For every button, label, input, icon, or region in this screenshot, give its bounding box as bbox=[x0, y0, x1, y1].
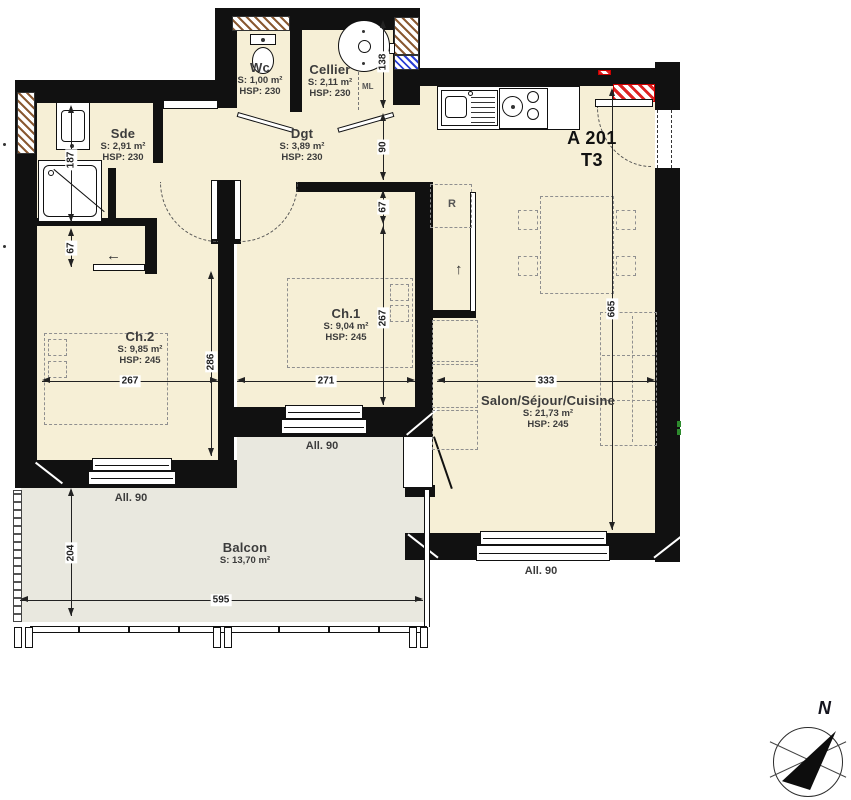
wall bbox=[655, 62, 680, 110]
room-label-ch1: Ch.1 S: 9,04 m² HSP: 245 bbox=[324, 306, 369, 343]
railing-post bbox=[420, 627, 428, 648]
entrance-door-leaf bbox=[595, 99, 653, 107]
dim-arrow bbox=[647, 377, 655, 383]
chair-outline bbox=[518, 256, 538, 276]
room-hsp: HSP: 245 bbox=[324, 332, 369, 343]
burner-dot bbox=[511, 105, 515, 109]
dim-label: 138 bbox=[377, 52, 389, 73]
unit-code: A 201 bbox=[567, 128, 617, 150]
fridge-label: R bbox=[448, 198, 456, 210]
room-label-wc: Wc S: 1,00 m² HSP: 230 bbox=[238, 60, 283, 97]
dim-label: 286 bbox=[205, 352, 217, 373]
railing-post bbox=[25, 627, 33, 648]
washer-label: ML bbox=[362, 82, 374, 91]
sliding-door-ch2 bbox=[211, 180, 218, 240]
room-name: Ch.1 bbox=[324, 306, 369, 321]
railing-post bbox=[224, 627, 232, 648]
dim-arrow bbox=[68, 608, 74, 616]
party-wall-hatch bbox=[232, 16, 290, 31]
room-name: Sde bbox=[101, 126, 146, 141]
pillow-outline bbox=[48, 339, 67, 356]
window-ch1 bbox=[285, 405, 363, 419]
room-label-ch2: Ch.2 S: 9,85 m² HSP: 245 bbox=[118, 329, 163, 366]
chair-outline bbox=[616, 256, 636, 276]
chair-outline bbox=[616, 210, 636, 230]
dim-label: 267 bbox=[377, 308, 389, 329]
room-label-balcon: Balcon S: 13,70 m² bbox=[220, 540, 270, 566]
dim-arrow bbox=[68, 259, 74, 267]
green-mark bbox=[677, 429, 681, 435]
shaft-hatch bbox=[394, 55, 419, 70]
plot-dot bbox=[3, 143, 6, 146]
railing-post bbox=[409, 627, 417, 648]
railing-post bbox=[14, 627, 22, 648]
room-hsp: HSP: 245 bbox=[118, 355, 163, 366]
room-hsp: HSP: 230 bbox=[280, 152, 325, 163]
window-ch1-sill bbox=[281, 419, 367, 434]
sill-label: All. 90 bbox=[306, 440, 338, 452]
plot-dot bbox=[3, 245, 6, 248]
sliding-door-ch1 bbox=[234, 180, 241, 240]
dim-arrow bbox=[609, 88, 615, 96]
burner-icon bbox=[527, 91, 539, 103]
balcony-side-rail bbox=[424, 490, 430, 627]
unit-label: A 201 T3 bbox=[567, 128, 617, 171]
dim-arrow bbox=[380, 172, 386, 180]
window-salon bbox=[480, 531, 607, 545]
sliding-door-pocket bbox=[93, 264, 145, 271]
room-hsp: HSP: 245 bbox=[481, 419, 615, 430]
dim-arrow bbox=[68, 488, 74, 496]
washer-bay-line bbox=[358, 72, 360, 110]
cabinet-outline bbox=[432, 410, 478, 450]
window-ch2-sill bbox=[88, 471, 176, 485]
dim-arrow bbox=[208, 271, 214, 279]
cabinet-outline bbox=[432, 320, 478, 362]
toilet-button-icon bbox=[261, 38, 265, 42]
wall bbox=[296, 182, 433, 192]
dim-label: 67 bbox=[377, 199, 389, 214]
dim-label: 67 bbox=[65, 240, 77, 255]
dim-label: 333 bbox=[536, 375, 557, 387]
unit-type: T3 bbox=[567, 150, 617, 172]
dim-arrow bbox=[380, 226, 386, 234]
sink-bowl-icon bbox=[445, 96, 467, 118]
floor-plan: ← ↑ bbox=[0, 0, 851, 800]
cabinet-outline bbox=[432, 364, 478, 408]
dim-arrow bbox=[415, 596, 423, 602]
dim-label: 204 bbox=[65, 543, 77, 564]
party-wall-hatch bbox=[394, 17, 419, 55]
north-label: N bbox=[818, 698, 831, 719]
sofa-cushion-line bbox=[602, 355, 655, 356]
room-area: S: 2,11 m² bbox=[308, 77, 352, 88]
dim-label: 267 bbox=[120, 375, 141, 387]
dim-arrow bbox=[609, 522, 615, 530]
wall bbox=[108, 168, 116, 220]
room-name: Dgt bbox=[280, 126, 325, 141]
window-ch2 bbox=[92, 458, 172, 471]
room-area: S: 13,70 m² bbox=[220, 555, 270, 566]
room-hsp: HSP: 230 bbox=[238, 86, 283, 97]
landing-opening-line bbox=[671, 110, 673, 168]
dim-arrow bbox=[68, 214, 74, 222]
dim-label: 187 bbox=[65, 150, 77, 171]
room-area: S: 21,73 m² bbox=[481, 408, 615, 419]
balcony-door-frame bbox=[403, 436, 433, 488]
slide-direction-arrow: ↑ bbox=[455, 262, 463, 277]
sill-label: All. 90 bbox=[115, 492, 147, 504]
sink-drainer-icon bbox=[471, 97, 495, 123]
dim-arrow bbox=[68, 228, 74, 236]
dim-arrow bbox=[42, 377, 50, 383]
room-label-cellier: Cellier S: 2,11 m² HSP: 230 bbox=[308, 62, 352, 99]
dim-label: 595 bbox=[211, 594, 232, 606]
room-name: Balcon bbox=[220, 540, 270, 555]
washbasin-bowl-icon bbox=[61, 110, 85, 142]
pillow-outline bbox=[48, 361, 67, 378]
wall bbox=[153, 103, 163, 163]
wall bbox=[290, 30, 302, 112]
sill-label: All. 90 bbox=[525, 565, 557, 577]
room-label-salon: Salon/Séjour/Cuisine S: 21,73 m² HSP: 24… bbox=[481, 393, 615, 430]
room-area: S: 1,00 m² bbox=[238, 75, 283, 86]
room-label-sde: Sde S: 2,91 m² HSP: 230 bbox=[101, 126, 146, 163]
green-mark bbox=[677, 421, 681, 427]
dim-label: 271 bbox=[316, 375, 337, 387]
burner-icon bbox=[527, 108, 539, 120]
dim-arrow bbox=[380, 100, 386, 108]
wall bbox=[147, 263, 157, 272]
pillow-outline bbox=[390, 284, 409, 301]
chair-outline bbox=[518, 210, 538, 230]
balcony-privacy-screen bbox=[13, 490, 22, 622]
dim-arrow bbox=[380, 216, 386, 224]
dim-arrow bbox=[407, 377, 415, 383]
sofa-cushion-line bbox=[632, 316, 633, 442]
wall bbox=[655, 168, 680, 562]
dim-arrow bbox=[208, 448, 214, 456]
dim-arrow bbox=[68, 105, 74, 113]
dim-arrow bbox=[380, 397, 386, 405]
room-hsp: HSP: 230 bbox=[101, 152, 146, 163]
slide-direction-arrow: ← bbox=[106, 248, 121, 263]
room-area: S: 3,89 m² bbox=[280, 141, 325, 152]
dim-arrow bbox=[20, 596, 28, 602]
shower-drain-icon bbox=[48, 170, 54, 176]
window-salon-sill bbox=[476, 545, 610, 561]
dim-label: 665 bbox=[606, 299, 618, 320]
room-name: Cellier bbox=[308, 62, 352, 77]
dim-arrow bbox=[437, 377, 445, 383]
party-wall-hatch bbox=[17, 92, 35, 154]
faucet-icon bbox=[468, 91, 473, 96]
dim-arrow bbox=[380, 190, 386, 198]
room-area: S: 2,91 m² bbox=[101, 141, 146, 152]
water-heater-pipe bbox=[389, 43, 395, 54]
dim-arrow bbox=[380, 113, 386, 121]
dim-arrow bbox=[210, 377, 218, 383]
room-name: Salon/Séjour/Cuisine bbox=[481, 393, 615, 408]
water-heater-dot bbox=[362, 30, 365, 33]
landing-opening-line bbox=[657, 110, 659, 168]
dim-label: 90 bbox=[377, 139, 389, 154]
railing-post bbox=[213, 627, 221, 648]
dining-table-outline bbox=[540, 196, 614, 294]
water-heater-dot bbox=[362, 62, 365, 65]
pillow-outline bbox=[390, 305, 409, 322]
dim-arrow bbox=[237, 377, 245, 383]
room-name: Ch.2 bbox=[118, 329, 163, 344]
room-name: Wc bbox=[238, 60, 283, 75]
room-area: S: 9,04 m² bbox=[324, 321, 369, 332]
sliding-door-sde bbox=[163, 100, 218, 109]
dim-arrow bbox=[380, 20, 386, 28]
room-hsp: HSP: 230 bbox=[308, 88, 352, 99]
room-label-dgt: Dgt S: 3,89 m² HSP: 230 bbox=[280, 126, 325, 163]
room-area: S: 9,85 m² bbox=[118, 344, 163, 355]
entrance-hatch-mark bbox=[598, 70, 611, 75]
water-heater-hub-icon bbox=[358, 40, 371, 53]
